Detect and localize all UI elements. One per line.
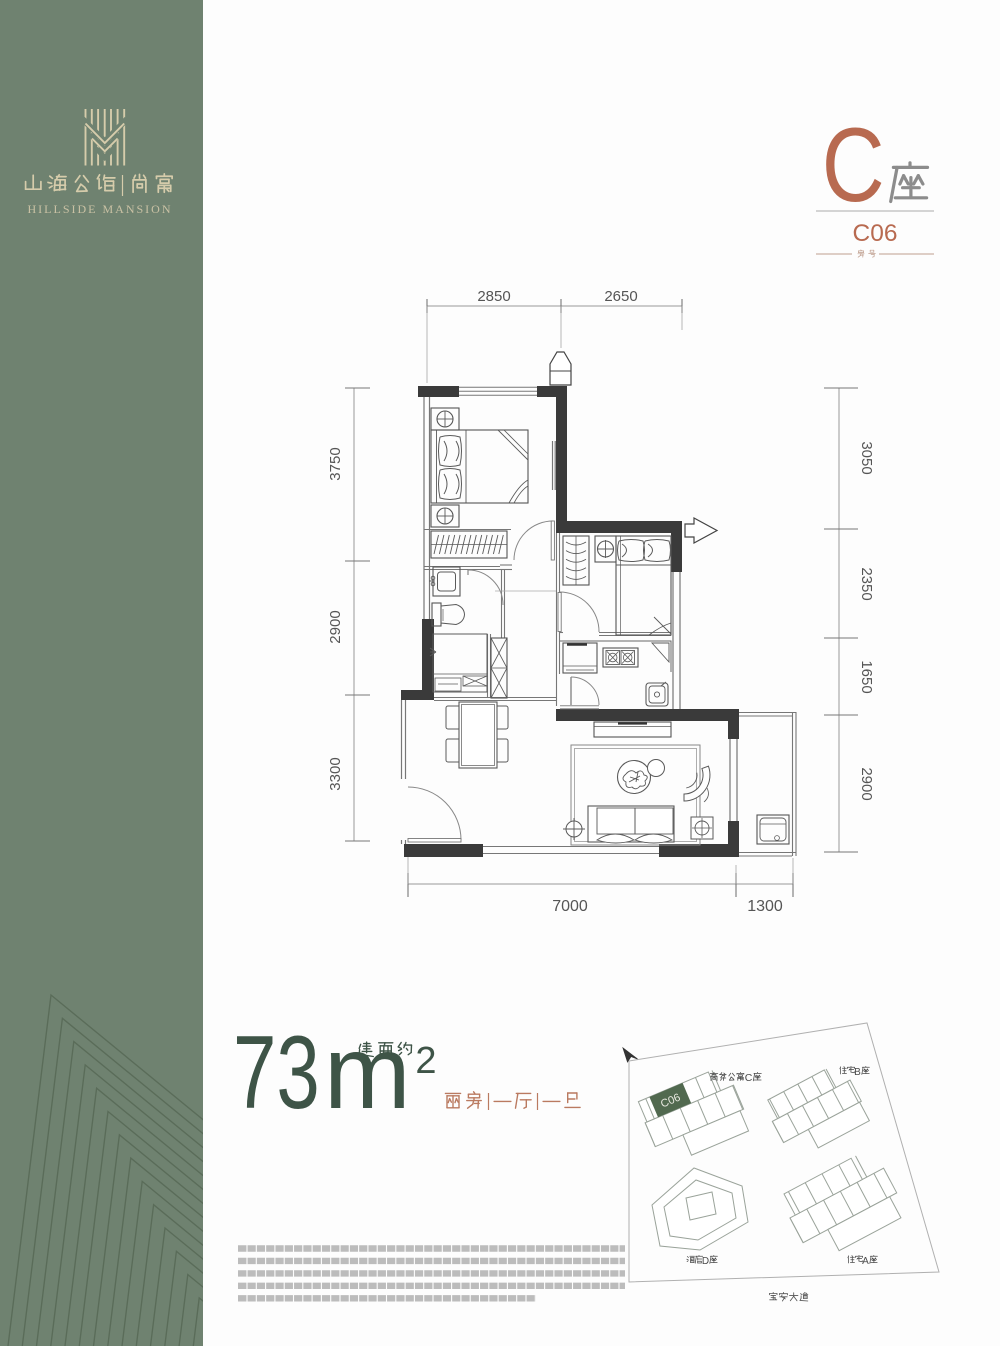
svg-text:D: D xyxy=(702,1256,709,1267)
svg-text:2900: 2900 xyxy=(327,610,344,643)
svg-text:2900: 2900 xyxy=(858,767,875,800)
svg-text:2350: 2350 xyxy=(858,567,875,600)
svg-text:3050: 3050 xyxy=(858,441,875,474)
svg-text:A: A xyxy=(862,1256,869,1267)
svg-text:HILLSIDE MANSION: HILLSIDE MANSION xyxy=(28,202,173,216)
svg-text:B: B xyxy=(854,1067,861,1078)
svg-text:m: m xyxy=(324,1015,411,1131)
svg-text:C06: C06 xyxy=(853,220,898,247)
svg-text:1650: 1650 xyxy=(858,660,875,693)
svg-text:C: C xyxy=(745,1072,753,1084)
svg-text:1300: 1300 xyxy=(747,898,783,915)
svg-text:3750: 3750 xyxy=(327,447,344,480)
svg-text:7000: 7000 xyxy=(552,898,588,915)
svg-text:C: C xyxy=(822,107,885,223)
svg-text:73: 73 xyxy=(233,1015,320,1130)
svg-text:2: 2 xyxy=(415,1040,436,1082)
svg-text:2650: 2650 xyxy=(604,288,637,305)
svg-text:2850: 2850 xyxy=(477,288,510,305)
svg-text:3300: 3300 xyxy=(327,757,344,790)
